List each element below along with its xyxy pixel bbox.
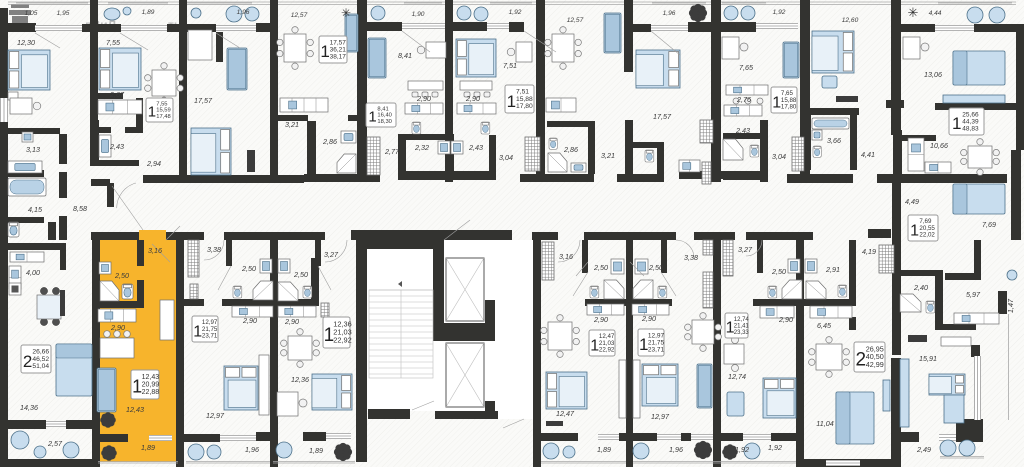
svg-text:3,21: 3,21 bbox=[601, 151, 615, 160]
svg-text:1,89: 1,89 bbox=[142, 9, 155, 16]
svg-text:1,89: 1,89 bbox=[141, 443, 155, 452]
svg-text:12,97: 12,97 bbox=[648, 332, 665, 339]
svg-text:1,89: 1,89 bbox=[597, 445, 611, 454]
svg-text:2,50: 2,50 bbox=[771, 267, 786, 276]
svg-text:12,43: 12,43 bbox=[126, 405, 144, 414]
svg-text:1,89: 1,89 bbox=[309, 446, 323, 455]
svg-text:1: 1 bbox=[952, 114, 961, 133]
svg-text:4,44: 4,44 bbox=[929, 10, 942, 17]
svg-text:8,58: 8,58 bbox=[73, 204, 87, 213]
svg-text:1,96: 1,96 bbox=[237, 9, 250, 16]
svg-text:25,66: 25,66 bbox=[962, 111, 979, 118]
svg-text:2,50: 2,50 bbox=[648, 263, 663, 272]
svg-text:✳: ✳ bbox=[341, 6, 351, 20]
svg-text:4,15: 4,15 bbox=[28, 205, 43, 214]
svg-text:1,92: 1,92 bbox=[509, 9, 522, 16]
svg-text:13,06: 13,06 bbox=[924, 70, 942, 79]
svg-text:42,99: 42,99 bbox=[866, 360, 884, 369]
svg-text:17,57: 17,57 bbox=[653, 112, 672, 121]
svg-text:2,50: 2,50 bbox=[593, 263, 608, 272]
svg-text:3,16: 3,16 bbox=[559, 252, 573, 261]
svg-text:23,71: 23,71 bbox=[202, 333, 218, 340]
svg-text:22,02: 22,02 bbox=[919, 232, 935, 239]
svg-text:2,43: 2,43 bbox=[109, 142, 124, 151]
svg-text:12,36: 12,36 bbox=[291, 375, 309, 384]
svg-text:48,83: 48,83 bbox=[962, 125, 979, 132]
svg-text:1,96: 1,96 bbox=[669, 445, 683, 454]
svg-text:2,86: 2,86 bbox=[563, 145, 578, 154]
svg-text:3,38: 3,38 bbox=[684, 253, 698, 262]
svg-text:3,27: 3,27 bbox=[738, 245, 753, 254]
svg-text:17,57: 17,57 bbox=[330, 39, 347, 46]
svg-text:12,60: 12,60 bbox=[842, 17, 859, 24]
svg-text:7,51: 7,51 bbox=[516, 89, 529, 96]
svg-text:8,41: 8,41 bbox=[377, 106, 388, 112]
svg-text:4,00: 4,00 bbox=[26, 268, 40, 277]
svg-text:1,92: 1,92 bbox=[768, 443, 782, 452]
svg-text:1: 1 bbox=[320, 42, 329, 61]
svg-text:3,04: 3,04 bbox=[499, 153, 513, 162]
svg-text:21,75: 21,75 bbox=[648, 339, 665, 346]
svg-text:2,32: 2,32 bbox=[414, 143, 429, 152]
svg-text:6,45: 6,45 bbox=[817, 321, 832, 330]
svg-text:2,90: 2,90 bbox=[465, 94, 480, 103]
svg-text:7,69: 7,69 bbox=[982, 220, 996, 229]
svg-text:3,16: 3,16 bbox=[148, 246, 162, 255]
svg-text:22,92: 22,92 bbox=[333, 336, 352, 345]
svg-text:3,38: 3,38 bbox=[207, 245, 221, 254]
svg-text:✳: ✳ bbox=[908, 5, 919, 20]
svg-text:2,90: 2,90 bbox=[416, 94, 431, 103]
svg-text:12,74: 12,74 bbox=[734, 317, 750, 323]
svg-text:10,66: 10,66 bbox=[930, 141, 948, 150]
svg-text:1: 1 bbox=[507, 92, 516, 111]
svg-text:51,04: 51,04 bbox=[32, 363, 49, 370]
svg-text:2: 2 bbox=[856, 349, 867, 370]
svg-text:2,50: 2,50 bbox=[114, 271, 129, 280]
svg-text:2,90: 2,90 bbox=[778, 315, 793, 324]
svg-text:12,97: 12,97 bbox=[206, 411, 225, 420]
svg-text:4,19: 4,19 bbox=[862, 247, 876, 256]
svg-text:12,43: 12,43 bbox=[142, 374, 160, 381]
svg-text:2,76: 2,76 bbox=[736, 95, 751, 104]
svg-text:21,41: 21,41 bbox=[734, 323, 750, 329]
svg-text:2,49: 2,49 bbox=[916, 445, 931, 454]
svg-text:12,47: 12,47 bbox=[556, 409, 575, 418]
svg-text:12,74: 12,74 bbox=[728, 372, 746, 381]
svg-text:3,66: 3,66 bbox=[827, 136, 841, 145]
svg-text:3,21: 3,21 bbox=[285, 120, 299, 129]
svg-text:2,43: 2,43 bbox=[468, 143, 483, 152]
svg-text:17,48: 17,48 bbox=[156, 114, 171, 120]
svg-text:1,96: 1,96 bbox=[245, 445, 259, 454]
svg-text:3,04: 3,04 bbox=[772, 152, 786, 161]
svg-text:2,90: 2,90 bbox=[641, 314, 656, 323]
svg-text:46,52: 46,52 bbox=[32, 356, 49, 363]
svg-text:2,91: 2,91 bbox=[825, 265, 840, 274]
svg-text:1: 1 bbox=[910, 222, 919, 239]
svg-text:5,97: 5,97 bbox=[966, 290, 981, 299]
svg-text:38,17: 38,17 bbox=[330, 53, 347, 60]
svg-text:4,49: 4,49 bbox=[905, 197, 919, 206]
svg-text:7,55: 7,55 bbox=[156, 101, 167, 107]
svg-text:23,71: 23,71 bbox=[648, 346, 665, 353]
svg-text:2,90: 2,90 bbox=[593, 315, 608, 324]
svg-text:1: 1 bbox=[368, 109, 376, 126]
svg-text:2,40: 2,40 bbox=[913, 283, 928, 292]
svg-text:12,30: 12,30 bbox=[17, 38, 35, 47]
svg-text:15,88: 15,88 bbox=[516, 96, 533, 103]
svg-text:20,99: 20,99 bbox=[142, 382, 160, 389]
svg-text:1,92: 1,92 bbox=[735, 445, 749, 454]
svg-text:2,90: 2,90 bbox=[242, 316, 257, 325]
svg-text:2: 2 bbox=[23, 352, 32, 371]
svg-text:23,33: 23,33 bbox=[734, 330, 750, 336]
svg-text:12,57: 12,57 bbox=[291, 12, 308, 19]
svg-text:3,13: 3,13 bbox=[26, 145, 40, 154]
svg-text:7,51: 7,51 bbox=[503, 61, 517, 70]
svg-text:1,05: 1,05 bbox=[25, 10, 38, 17]
svg-text:8,41: 8,41 bbox=[398, 51, 412, 60]
svg-text:44,39: 44,39 bbox=[962, 118, 979, 125]
svg-text:2,67: 2,67 bbox=[109, 90, 125, 99]
svg-text:1,47: 1,47 bbox=[1006, 298, 1015, 313]
svg-text:18,30: 18,30 bbox=[377, 119, 392, 125]
svg-text:1,92: 1,92 bbox=[773, 9, 786, 16]
svg-text:1,90: 1,90 bbox=[412, 11, 425, 18]
svg-text:3,27: 3,27 bbox=[324, 250, 339, 259]
svg-text:14,36: 14,36 bbox=[20, 403, 38, 412]
svg-text:2,50: 2,50 bbox=[293, 270, 308, 279]
svg-text:16,40: 16,40 bbox=[377, 113, 392, 119]
svg-text:2,57: 2,57 bbox=[47, 439, 63, 448]
svg-text:11,04: 11,04 bbox=[816, 419, 833, 428]
svg-text:26,66: 26,66 bbox=[32, 349, 49, 356]
svg-text:2,90: 2,90 bbox=[284, 317, 299, 326]
svg-text:1,96: 1,96 bbox=[663, 10, 676, 17]
svg-text:2,90: 2,90 bbox=[110, 323, 125, 332]
svg-text:36,21: 36,21 bbox=[330, 46, 347, 53]
svg-text:12,97: 12,97 bbox=[651, 412, 670, 421]
svg-text:1,95: 1,95 bbox=[57, 10, 70, 17]
svg-text:7,55: 7,55 bbox=[106, 38, 121, 47]
svg-text:22,92: 22,92 bbox=[599, 347, 615, 354]
svg-text:1: 1 bbox=[148, 104, 156, 121]
svg-text:17,80: 17,80 bbox=[781, 104, 797, 111]
svg-text:4,41: 4,41 bbox=[861, 150, 875, 159]
svg-text:2,86: 2,86 bbox=[322, 137, 337, 146]
svg-text:2,43: 2,43 bbox=[735, 126, 750, 135]
svg-text:15,91: 15,91 bbox=[919, 354, 937, 363]
svg-text:17,80: 17,80 bbox=[516, 103, 533, 110]
svg-text:12,57: 12,57 bbox=[567, 17, 584, 24]
svg-text:17,57: 17,57 bbox=[194, 96, 213, 105]
svg-text:2,77: 2,77 bbox=[384, 147, 400, 156]
svg-text:7,65: 7,65 bbox=[739, 63, 754, 72]
svg-text:22,88: 22,88 bbox=[142, 389, 160, 396]
svg-text:2,50: 2,50 bbox=[241, 264, 256, 273]
svg-text:15,59: 15,59 bbox=[156, 108, 171, 114]
svg-text:2,94: 2,94 bbox=[146, 159, 161, 168]
